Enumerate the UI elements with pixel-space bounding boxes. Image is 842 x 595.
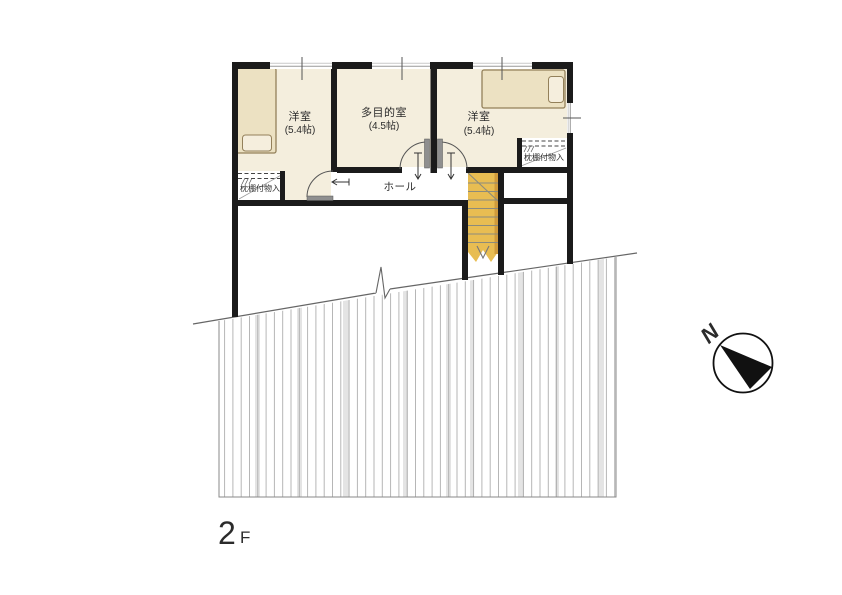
bed-right-icon — [482, 70, 565, 108]
room-right-name: 洋室 — [468, 109, 491, 123]
room-middle-size: (4.5帖) — [369, 119, 400, 132]
closet-right-label: 枕棚付物入 — [524, 152, 564, 162]
room-left-name: 洋室 — [289, 109, 312, 123]
bed-left-icon — [236, 68, 276, 153]
floor-label: 2 F — [218, 515, 250, 551]
compass: N — [695, 318, 772, 392]
shelf-mark-icon — [524, 146, 534, 152]
door-leaf — [307, 196, 333, 201]
roof-hatch-area — [219, 250, 617, 500]
floor-number: 2 — [218, 515, 236, 551]
door-leaf — [438, 139, 443, 168]
floor-plan-drawing: 洋室 (5.4帖) 多目的室 (4.5帖) 洋室 (5.4帖) ホール 枕棚付物… — [0, 0, 842, 595]
closet-left-label: 枕棚付物入 — [240, 183, 280, 193]
room-middle-name: 多目的室 — [361, 105, 407, 119]
staircase — [468, 172, 498, 262]
hall-label: ホール — [384, 181, 417, 193]
door-leaf — [425, 139, 430, 168]
room-left-size: (5.4帖) — [285, 123, 316, 136]
floor-plan-page: 洋室 (5.4帖) 多目的室 (4.5帖) 洋室 (5.4帖) ホール 枕棚付物… — [0, 0, 842, 595]
room-right-size: (5.4帖) — [464, 124, 495, 137]
floor-suffix: F — [240, 528, 250, 547]
